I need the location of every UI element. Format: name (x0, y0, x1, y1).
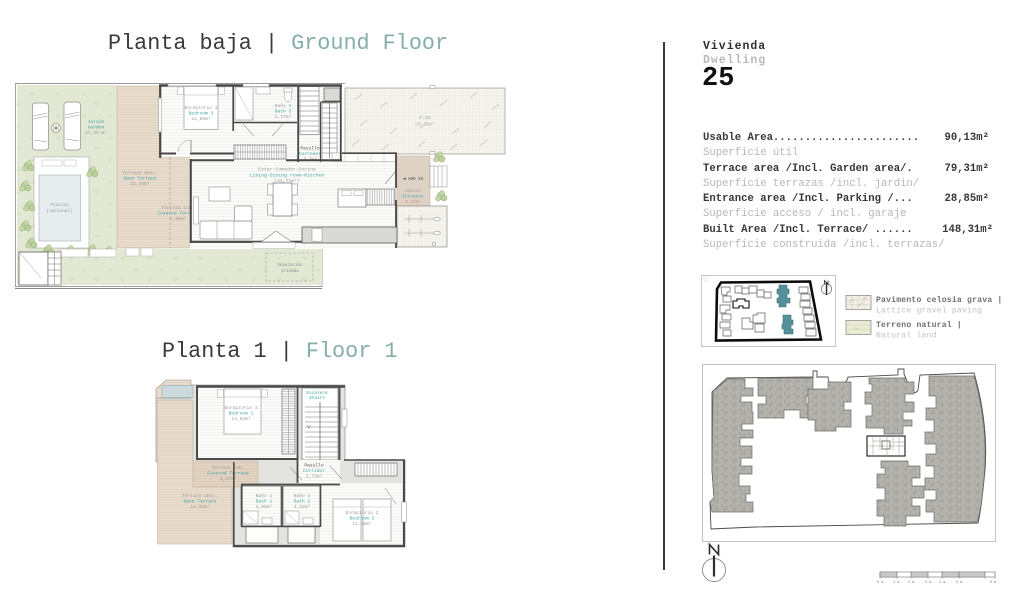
svg-text:0 m: 0 m (877, 581, 883, 585)
svg-text:Jardín: Jardín (88, 119, 105, 125)
svg-text:Estar-Comedor-Cocina: Estar-Comedor-Cocina (258, 167, 316, 173)
svg-text:Garden: Garden (88, 125, 105, 131)
svg-text:2 m: 2 m (908, 581, 914, 585)
svg-text:Covered Terrace: Covered Terrace (207, 471, 249, 477)
svg-text:3,63m²: 3,63m² (294, 504, 311, 510)
svg-text:Separación: Separación (277, 263, 303, 268)
svg-text:Natural land: Natural land (876, 332, 937, 341)
svg-text:2,73m²: 2,73m² (306, 474, 323, 480)
svg-text:Piscina: Piscina (50, 203, 69, 208)
svg-text:2,88m²: 2,88m² (170, 216, 187, 222)
svg-text:Terraza cub.: Terraza cub. (211, 465, 244, 471)
svg-text:5 m: 5 m (956, 581, 962, 585)
svg-text:14,91m²: 14,91m² (190, 504, 210, 510)
svg-text:Dormitorio 3: Dormitorio 3 (184, 105, 217, 111)
svg-text:Baño 3: Baño 3 (275, 103, 292, 109)
svg-text:◀ A09 26: ◀ A09 26 (403, 177, 424, 182)
svg-text:Dormitorio 2: Dormitorio 2 (345, 510, 378, 516)
svg-text:Terraza desc.: Terraza desc. (122, 170, 158, 176)
svg-text:Bath 2: Bath 2 (294, 499, 311, 505)
svg-text:Lattice gravel paving: Lattice gravel paving (876, 307, 982, 316)
svg-text:Open Terrace: Open Terrace (183, 499, 216, 505)
svg-text:(opcional): (opcional) (46, 209, 72, 214)
svg-text:11,38m²: 11,38m² (352, 521, 372, 527)
svg-text:11,05m²: 11,05m² (191, 116, 211, 122)
svg-text:20,10m²: 20,10m² (415, 122, 435, 128)
svg-text:Terraza desc.: Terraza desc. (182, 493, 218, 499)
svg-text:Bedroom 2: Bedroom 2 (350, 516, 375, 522)
svg-text:Dormitorio 1: Dormitorio 1 (224, 405, 257, 411)
svg-text:Pasillo: Pasillo (300, 146, 320, 152)
svg-text:P.55: P.55 (419, 115, 431, 121)
svg-text:Corredor: Corredor (299, 151, 321, 157)
svg-text:Bath 3: Bath 3 (275, 109, 292, 115)
svg-text:4 m: 4 m (939, 581, 945, 585)
svg-text:Bath 1: Bath 1 (256, 499, 273, 505)
svg-text:3 m: 3 m (925, 581, 931, 585)
svg-text:1 m: 1 m (893, 581, 899, 585)
svg-text:21,44m²: 21,44m² (130, 181, 150, 187)
svg-text:Corridor: Corridor (303, 468, 325, 474)
svg-text:Terreno natural |: Terreno natural | (876, 321, 962, 330)
svg-text:Pavimento celosia grava |: Pavimento celosia grava | (876, 296, 1002, 305)
svg-text:3,77m²: 3,77m² (275, 114, 292, 120)
svg-text:Acceso: Acceso (405, 189, 421, 194)
svg-text:Stairs: Stairs (309, 396, 325, 401)
svg-text:privada: privada (281, 269, 299, 274)
svg-text:Baño 1: Baño 1 (256, 493, 273, 499)
svg-text:Terraza cub.: Terraza cub. (161, 205, 194, 211)
svg-text:8 m: 8 m (990, 581, 996, 585)
svg-text:Bedroom 3: Bedroom 3 (189, 111, 214, 117)
svg-text:Bedroom 1: Bedroom 1 (229, 411, 254, 417)
svg-text:Baño 2: Baño 2 (294, 493, 311, 499)
svg-text:14,52m²: 14,52m² (231, 416, 251, 422)
svg-text:47,39 m²: 47,39 m² (85, 130, 107, 136)
svg-text:Pasillo: Pasillo (304, 463, 324, 469)
svg-text:4,09m²: 4,09m² (256, 504, 273, 510)
svg-text:Open Terrace: Open Terrace (123, 176, 156, 182)
svg-text:Living-Dining room-Kitchen: Living-Dining room-Kitchen (250, 173, 325, 179)
svg-text:Entrance: Entrance (402, 195, 423, 200)
svg-text:8,21m²: 8,21m² (405, 199, 421, 205)
